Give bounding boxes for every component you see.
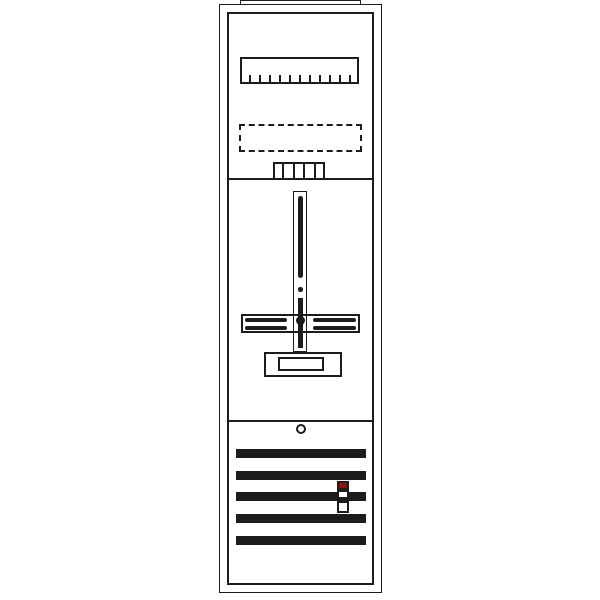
terminal-tick: [299, 75, 301, 82]
terminal-tick: [329, 75, 331, 82]
busbar: [236, 514, 366, 523]
busbar: [236, 471, 366, 480]
terminal-tick: [259, 75, 261, 82]
terminal-tick: [289, 75, 291, 82]
terminal-tick: [309, 75, 311, 82]
rail-fixing-hole: [298, 287, 303, 292]
terminal-tick: [349, 75, 351, 82]
cross-slot-left-top: [245, 318, 287, 323]
section-divider-bottom: [227, 420, 374, 422]
fuse-indicator: [337, 481, 349, 513]
terminal-tick: [249, 75, 251, 82]
meter-cabinet-drawing: [0, 0, 600, 600]
cross-slot-right-bottom: [313, 326, 356, 331]
terminal-tick: [269, 75, 271, 82]
cross-slot-left-bottom: [245, 326, 287, 331]
cross-center-screw: [296, 316, 305, 325]
rail-slot-upper: [298, 196, 303, 278]
terminal-tick: [319, 75, 321, 82]
knockout-hole: [296, 424, 306, 434]
cross-slot-right-top: [313, 318, 356, 323]
reserve-field-dashed: [239, 124, 362, 152]
section-divider-top: [227, 178, 374, 180]
terminal-tick: [339, 75, 341, 82]
fuse-indicator-white-band-2: [339, 503, 347, 511]
busbar: [236, 536, 366, 545]
mounting-bracket-notch: [278, 357, 324, 371]
busbar: [236, 449, 366, 458]
terminal-tick: [279, 75, 281, 82]
